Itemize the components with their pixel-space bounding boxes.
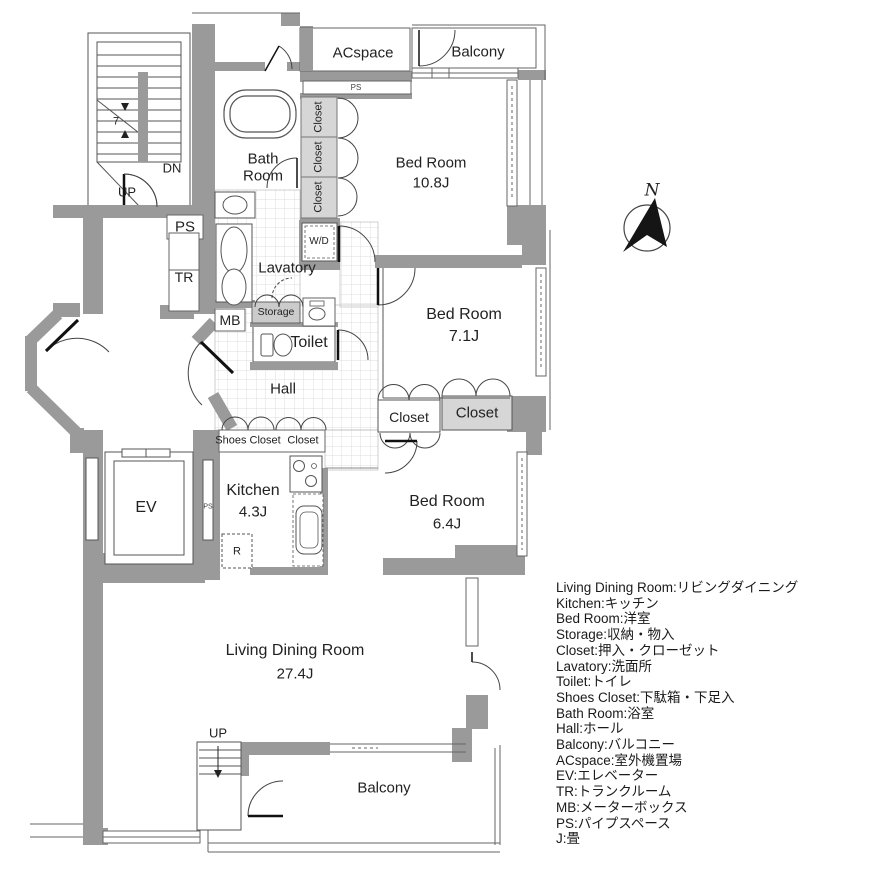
label-living-name: Living Dining Room bbox=[226, 643, 365, 659]
label-shoes-closet: Shoes Closet bbox=[215, 436, 280, 447]
up-staircase bbox=[197, 742, 241, 830]
stair-newel-wall bbox=[138, 72, 148, 162]
label-ps-strip: PS bbox=[351, 84, 362, 92]
octagon-walls bbox=[30, 314, 232, 432]
legend-line: Shoes Closet:下駄箱・下足入 bbox=[556, 690, 798, 706]
label-up: UP bbox=[118, 186, 136, 199]
label-living-size: 27.4J bbox=[277, 667, 314, 682]
label-mb: MB bbox=[220, 313, 241, 327]
bedroom2-door-arc bbox=[378, 268, 415, 305]
legend-line: Balcony:バルコニー bbox=[556, 737, 798, 753]
label-bedroom3-size: 6.4J bbox=[433, 517, 461, 532]
legend-line: MB:メーターボックス bbox=[556, 800, 798, 816]
label-bedroom2-name: Bed Room bbox=[426, 307, 502, 323]
corridor-floor bbox=[340, 222, 378, 307]
label-balcony-top: Balcony bbox=[451, 45, 504, 60]
legend-line: Kitchen:キッチン bbox=[556, 596, 798, 612]
basin-sink bbox=[309, 308, 325, 320]
legend-line: J:畳 bbox=[556, 831, 798, 847]
label-ps-left: PS bbox=[175, 220, 195, 235]
entrance-door-arc-right bbox=[188, 342, 202, 405]
label-wd: W/D bbox=[309, 237, 328, 247]
closet-b-doors bbox=[442, 379, 510, 396]
label-north: N bbox=[645, 183, 660, 200]
label-refrigerator: R bbox=[233, 547, 241, 558]
label-kitchen-size: 4.3J bbox=[239, 505, 267, 520]
legend-line: Lavatory:洗面所 bbox=[556, 659, 798, 675]
acspace-door-leaf bbox=[265, 46, 279, 71]
closet-column-doors bbox=[338, 98, 358, 216]
label-acspace: ACspace bbox=[333, 46, 394, 61]
label-tr: TR bbox=[175, 270, 194, 284]
legend-line: PS:パイプスペース bbox=[556, 816, 798, 832]
label-bath-2: Room bbox=[243, 169, 283, 184]
legend-line: EV:エレベーター bbox=[556, 768, 798, 784]
label-closet-2: Closet bbox=[314, 141, 325, 172]
common-staircase bbox=[88, 33, 190, 207]
label-closet-a: Closet bbox=[389, 410, 429, 424]
floorplan: ACspace Balcony PS Closet Closet Closet … bbox=[0, 0, 872, 872]
living-balcony-door-arc bbox=[472, 662, 500, 690]
label-toilet: Toilet bbox=[290, 335, 327, 351]
floorplan-page: { "plan": { "labels": { "acspace": "ACsp… bbox=[0, 0, 872, 872]
label-up2: UP bbox=[209, 727, 227, 740]
label-bedroom1-size: 10.8J bbox=[413, 176, 450, 191]
entry-floor bbox=[325, 430, 378, 470]
legend-line: Toilet:トイレ bbox=[556, 674, 798, 690]
label-dn: DN bbox=[163, 162, 182, 175]
toilet-bowl bbox=[274, 334, 292, 356]
label-closet-3: Closet bbox=[314, 181, 325, 212]
legend-line: Hall:ホール bbox=[556, 721, 798, 737]
label-ps-ev: PS bbox=[203, 504, 212, 511]
label-lavatory: Lavatory bbox=[258, 261, 316, 276]
label-hall: Hall bbox=[270, 382, 296, 397]
legend-line: Bath Room:浴室 bbox=[556, 706, 798, 722]
legend-line: Living Dining Room:リビングダイニング bbox=[556, 580, 798, 596]
label-stair-count: 7 bbox=[113, 117, 119, 128]
compass-needle bbox=[623, 198, 667, 252]
label-storage: Storage bbox=[258, 307, 295, 318]
label-bedroom3-name: Bed Room bbox=[409, 494, 485, 510]
toilet-tank bbox=[261, 334, 273, 356]
label-ev: EV bbox=[135, 500, 156, 516]
legend-line: Bed Room:洋室 bbox=[556, 611, 798, 627]
legend: Living Dining Room:リビングダイニング Kitchen:キッチ… bbox=[556, 580, 798, 847]
label-bath-1: Bath bbox=[248, 152, 279, 167]
label-closet-1: Closet bbox=[314, 101, 325, 132]
legend-line: Closet:押入・クローゼット bbox=[556, 643, 798, 659]
label-closet-b: Closet bbox=[456, 406, 499, 421]
label-balcony-bottom: Balcony bbox=[357, 781, 410, 796]
stove bbox=[290, 456, 322, 492]
legend-line: Storage:収納・物入 bbox=[556, 627, 798, 643]
label-bedroom2-size: 7.1J bbox=[449, 329, 479, 345]
label-closet-c: Closet bbox=[287, 436, 318, 447]
label-kitchen-name: Kitchen bbox=[226, 483, 279, 499]
label-bedroom1-name: Bed Room bbox=[396, 156, 467, 171]
legend-line: TR:トランクルーム bbox=[556, 784, 798, 800]
lavatory-sink bbox=[223, 196, 247, 214]
bedroom3-door-arc bbox=[385, 441, 417, 473]
north-compass bbox=[623, 198, 670, 252]
legend-line: ACspace:室外機置場 bbox=[556, 753, 798, 769]
balcony-door-arc bbox=[248, 781, 283, 816]
